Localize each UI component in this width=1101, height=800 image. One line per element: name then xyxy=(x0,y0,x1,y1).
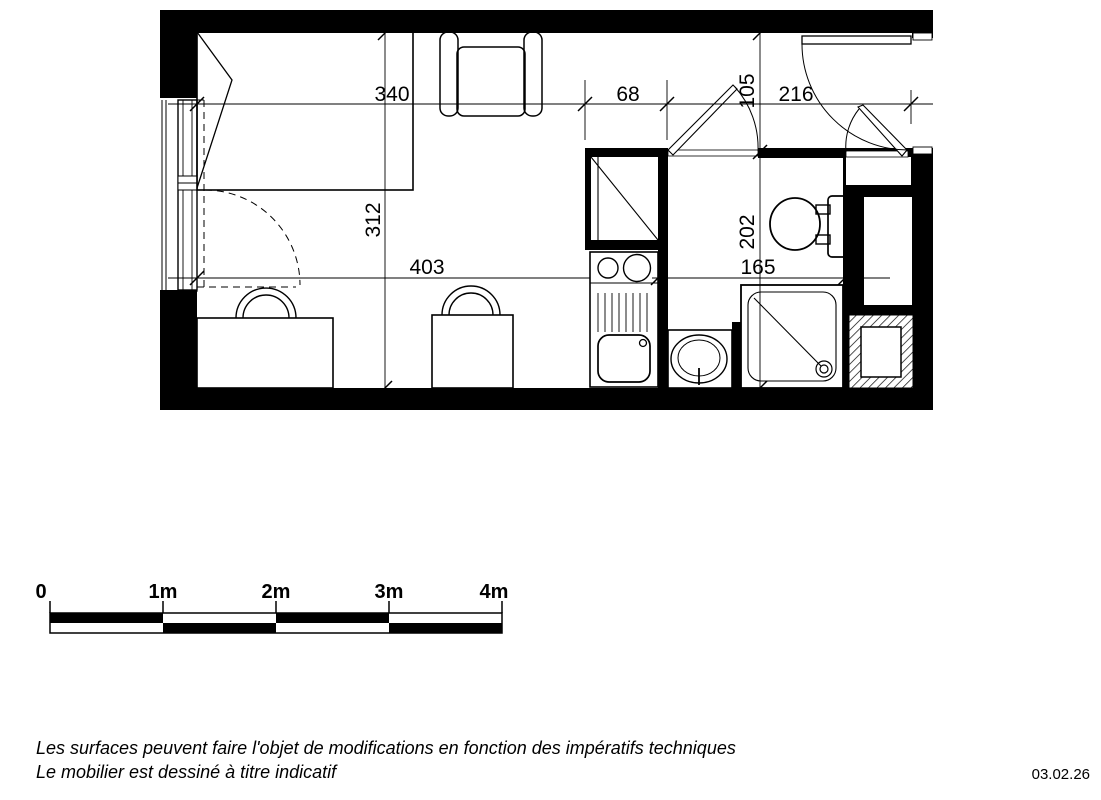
shower xyxy=(741,285,843,388)
kitchen-block xyxy=(590,157,658,387)
wall-fridge-bottom xyxy=(585,240,668,250)
scale-4m: 4m xyxy=(480,581,509,603)
entrance-door xyxy=(802,33,932,154)
dim-68: 68 xyxy=(616,83,639,106)
window-handle xyxy=(178,176,197,183)
footer: Les surfaces peuvent faire l'objet de mo… xyxy=(36,738,1090,783)
floor-plan-drawing: 340 68 216 403 165 312 105 202 0 1m 2m 3… xyxy=(0,0,1101,800)
wall-bottom xyxy=(160,388,933,410)
wall-hall-partition xyxy=(758,148,846,158)
washbasin xyxy=(668,330,732,388)
window-swing-dashed xyxy=(197,100,300,287)
entrance-door-leaf xyxy=(802,36,911,44)
toilet xyxy=(770,196,847,257)
dim-216: 216 xyxy=(778,83,813,106)
bed xyxy=(197,32,413,190)
wall-basin-shower-stub xyxy=(732,322,741,388)
wall-kitchen-top xyxy=(585,148,668,157)
scale-bar: 0 1m 2m 3m 4m xyxy=(35,581,508,633)
wall-kitchen-bath xyxy=(658,148,668,388)
drainer xyxy=(598,293,647,332)
scale-3m: 3m xyxy=(375,581,404,603)
door-jamb-top xyxy=(913,33,932,40)
wall-left-upper xyxy=(160,10,197,98)
fridge xyxy=(591,157,658,240)
footer-note-2: Le mobilier est dessiné à titre indicati… xyxy=(36,762,338,782)
scale-2m: 2m xyxy=(262,581,291,603)
wall-top xyxy=(160,10,933,33)
scale-1m: 1m xyxy=(149,581,178,603)
scale-0: 0 xyxy=(35,581,46,603)
footer-note-1: Les surfaces peuvent faire l'objet de mo… xyxy=(36,738,736,758)
duct-shaft-inner xyxy=(861,327,901,377)
sofa xyxy=(440,32,542,116)
kitchen-sink xyxy=(598,335,650,382)
closet-room xyxy=(864,197,912,305)
wall-kitchen-left xyxy=(585,148,591,250)
dim-340: 340 xyxy=(374,83,409,106)
dim-312: 312 xyxy=(362,202,385,237)
dimension-lines xyxy=(168,26,933,395)
dim-165: 165 xyxy=(740,256,775,279)
footer-date: 03.02.26 xyxy=(1032,766,1090,783)
window xyxy=(162,100,300,290)
dim-202: 202 xyxy=(736,214,759,249)
door-jamb-bottom xyxy=(913,147,932,154)
dim-105: 105 xyxy=(736,73,759,108)
table-right xyxy=(432,286,513,388)
floor-plan-page: 340 68 216 403 165 312 105 202 0 1m 2m 3… xyxy=(0,0,1101,800)
dim-403: 403 xyxy=(409,256,444,279)
closet-niche xyxy=(846,157,911,185)
hob xyxy=(590,255,658,284)
desk-left xyxy=(197,288,333,388)
